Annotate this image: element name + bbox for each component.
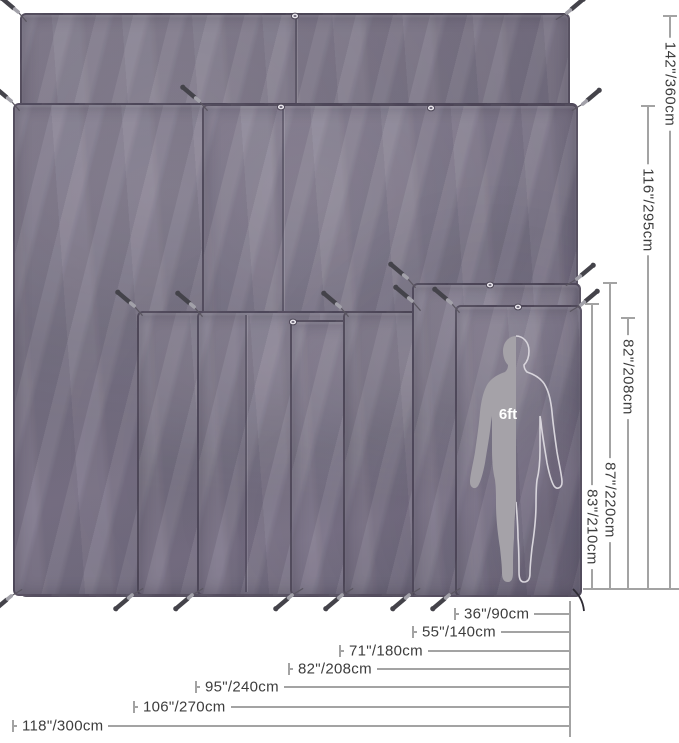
dimension-label: 95"/240cm: [200, 679, 284, 696]
tarp-seam: [245, 315, 247, 592]
stake-head: [429, 605, 436, 612]
stake-body: [174, 596, 190, 610]
stake-head: [0, 0, 5, 2]
dimension-label: 87"/220cm: [602, 458, 619, 542]
dimension-tick: [339, 645, 341, 657]
dimension-label: 36"/90cm: [459, 606, 534, 623]
stake-body: [0, 0, 16, 11]
dimension-label: 82"/208cm: [620, 335, 637, 419]
dimension-label: 106"/270cm: [138, 699, 231, 716]
stake-head: [272, 605, 279, 612]
dimension-tick: [621, 317, 635, 319]
dimension-tick: [12, 720, 14, 732]
dimension-tick: [585, 303, 599, 305]
dimension-tick: [454, 608, 456, 620]
stake-head: [172, 605, 179, 612]
product-size-diagram: 6ft 142"/360cm116"/295cm82"/208cm87"/220…: [0, 0, 679, 743]
stake-tip: [5, 594, 13, 602]
stake-head: [322, 605, 329, 612]
stake-head: [389, 605, 396, 612]
dimension-label: 142"/360cm: [662, 38, 679, 131]
stake-tip: [5, 96, 13, 104]
dimension-label: 55"/140cm: [417, 624, 501, 641]
dimension-baseline: [569, 601, 571, 737]
stake-body: [274, 596, 290, 610]
dimension-tick: [412, 626, 414, 638]
dimension-line: [609, 283, 611, 589]
dimension-tick: [195, 681, 197, 693]
stake-tip: [12, 7, 20, 15]
stake-head: [596, 87, 603, 94]
dimension-label: 83"/210cm: [584, 485, 601, 569]
dimension-tick: [133, 701, 135, 713]
dimension-tick: [663, 15, 677, 17]
dimension-label: 82"/208cm: [293, 661, 377, 678]
tarp-layer-36in-wide: [455, 305, 582, 597]
stake-body: [579, 264, 595, 278]
dimension-label: 118"/300cm: [17, 718, 108, 735]
stake-tip: [580, 99, 588, 107]
dimension-tick: [641, 105, 655, 107]
dimension-label: 116"/295cm: [640, 164, 657, 255]
stake-body: [114, 596, 130, 610]
stake-body: [324, 596, 340, 610]
stake-body: [569, 0, 585, 12]
stake-head: [112, 605, 119, 612]
stake-body: [431, 596, 447, 610]
stake-body: [0, 597, 9, 611]
stake-body: [391, 596, 407, 610]
dimension-tick: [288, 663, 290, 675]
stake-head: [594, 288, 601, 295]
stake-head: [590, 262, 597, 269]
dimension-label: 71"/180cm: [344, 643, 428, 660]
stake-body: [585, 89, 601, 103]
stake-body: [583, 290, 599, 304]
dimension-tick: [603, 282, 617, 284]
stake-head: [580, 0, 587, 3]
stake-body: [0, 86, 9, 100]
dimension-baseline: [583, 588, 679, 590]
